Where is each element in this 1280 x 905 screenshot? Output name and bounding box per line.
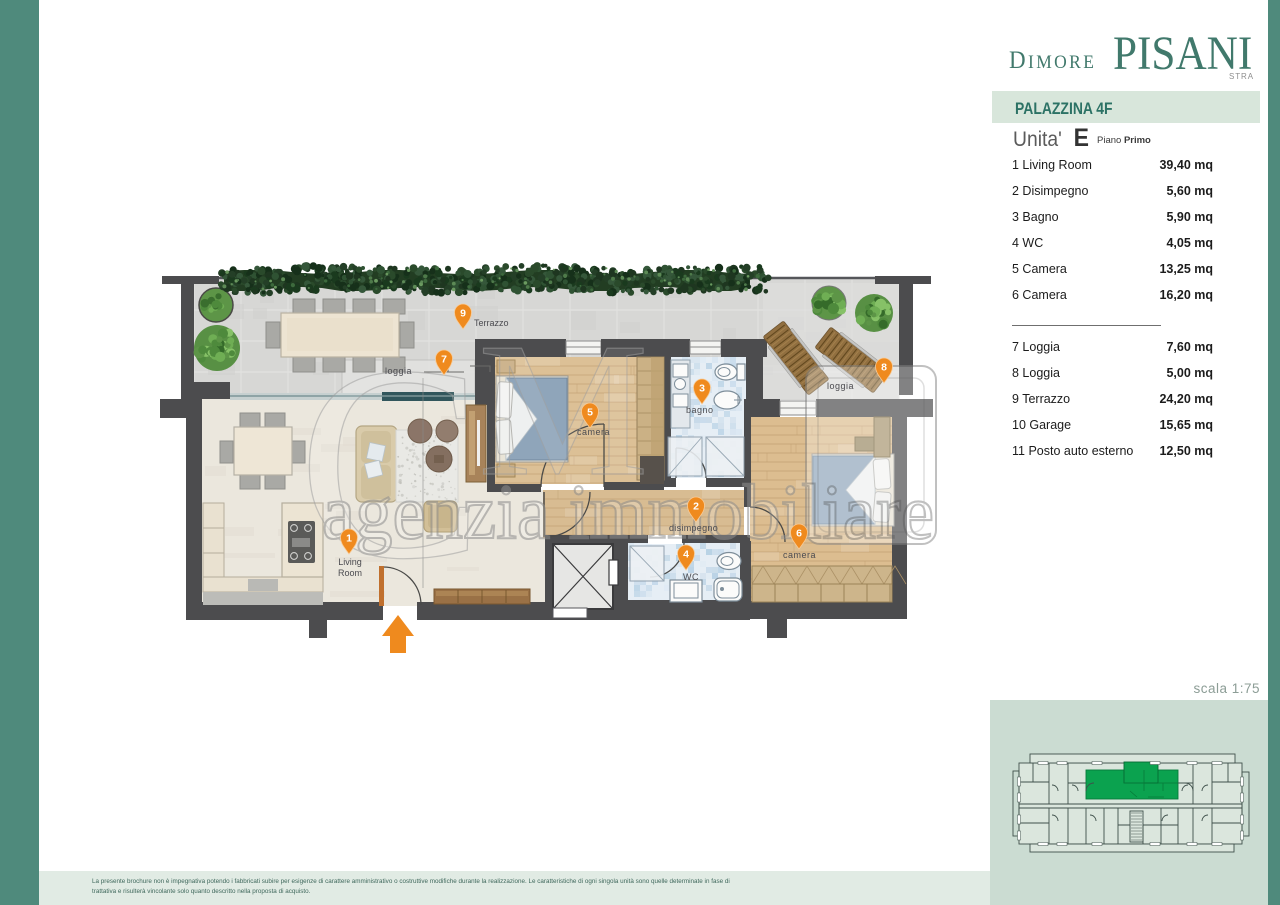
svg-text:Living: Living: [338, 557, 362, 567]
svg-text:5: 5: [587, 407, 593, 419]
svg-text:camera: camera: [783, 550, 816, 560]
svg-text:disimpegno: disimpegno: [669, 523, 718, 533]
svg-text:1: 1: [346, 533, 352, 545]
svg-text:3: 3: [699, 383, 705, 395]
svg-text:Room: Room: [338, 568, 362, 578]
svg-text:9: 9: [460, 308, 466, 320]
svg-text:Terrazzo: Terrazzo: [474, 318, 509, 328]
svg-text:WC: WC: [683, 572, 699, 582]
svg-text:agenzia immobiliare: agenzia immobiliare: [322, 468, 934, 555]
svg-text:2: 2: [693, 501, 699, 513]
svg-text:C: C: [298, 309, 483, 617]
svg-text:loggia: loggia: [385, 366, 412, 376]
svg-text:6: 6: [796, 528, 802, 540]
svg-text:bagno: bagno: [686, 405, 714, 415]
svg-text:4: 4: [683, 549, 689, 561]
svg-text:8: 8: [881, 362, 887, 374]
svg-text:camera: camera: [577, 427, 610, 437]
svg-text:loggia: loggia: [827, 381, 854, 391]
svg-text:7: 7: [441, 354, 447, 366]
